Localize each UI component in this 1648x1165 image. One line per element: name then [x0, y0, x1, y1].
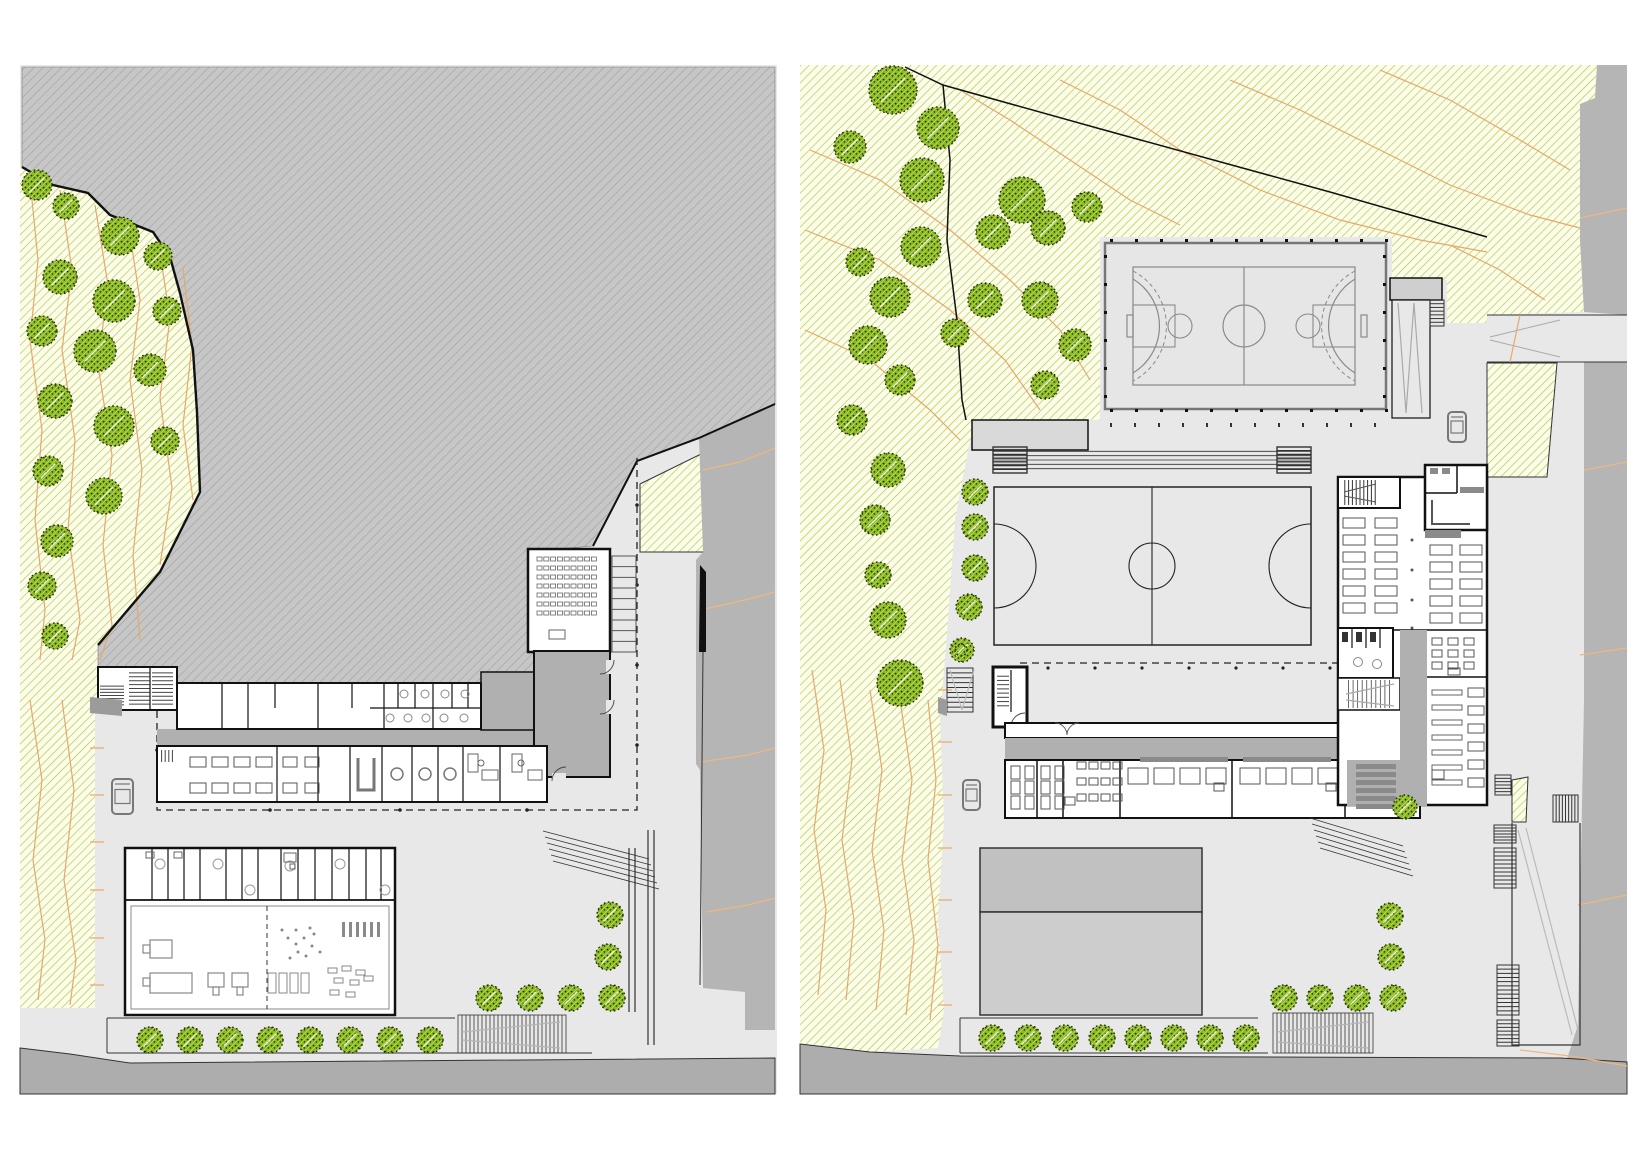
- fence-posts-right-cell: [1383, 339, 1386, 342]
- tree: [1031, 371, 1059, 399]
- floor-scatter-dot: [297, 951, 300, 954]
- tree: [901, 227, 941, 267]
- gym-roof-lower: [980, 912, 1202, 1015]
- tree: [1125, 1025, 1151, 1051]
- hall-bars-cell: [342, 922, 345, 937]
- tree: [94, 406, 134, 446]
- tree: [1015, 1025, 1041, 1051]
- corridor: [157, 729, 547, 746]
- tree: [217, 1027, 243, 1053]
- tree: [871, 453, 905, 487]
- tree: [837, 405, 867, 435]
- tree: [38, 384, 72, 418]
- fence-posts-left-cell: [1104, 283, 1107, 286]
- fence-posts-right-cell: [1383, 311, 1386, 314]
- property-markers-dot: [1281, 666, 1284, 669]
- tree: [1072, 192, 1102, 222]
- corridor-benches-cell: [1356, 772, 1396, 777]
- kitchen: [1425, 465, 1487, 530]
- fence-posts-top-cell: [1310, 239, 1313, 242]
- property-markers-dot: [635, 663, 639, 667]
- corridor-benches-cell: [1356, 788, 1396, 793]
- tree: [1089, 1025, 1115, 1051]
- tree: [595, 944, 621, 970]
- locker-strips-item: [1140, 757, 1228, 762]
- ramp-wedge: [938, 697, 947, 716]
- tree: [979, 1025, 1005, 1051]
- floor-scatter-dot: [305, 955, 308, 958]
- tree: [597, 902, 623, 928]
- fence-posts-top-cell: [1210, 239, 1213, 242]
- south-building: [125, 848, 395, 1015]
- site-plan-canvas: [0, 0, 1648, 1165]
- floor-scatter-dot: [295, 943, 298, 946]
- hall-bars-cell: [349, 922, 352, 937]
- tree: [1344, 985, 1370, 1011]
- corridor-benches-cell: [1356, 804, 1396, 809]
- property-markers-dot: [1046, 666, 1049, 669]
- tree: [33, 456, 63, 486]
- locker-strips-item: [1243, 757, 1331, 762]
- fence-posts-left-cell: [1104, 367, 1107, 370]
- tree: [1393, 795, 1417, 819]
- fence-posts-top-cell: [1260, 239, 1263, 242]
- fence-posts-top-cell: [1285, 239, 1288, 242]
- tree: [74, 330, 116, 372]
- property-markers-dot: [1328, 666, 1331, 669]
- tree: [86, 478, 122, 514]
- kitchen-fixtures-item: [1442, 468, 1450, 474]
- tree: [517, 985, 543, 1011]
- fence-posts-bottom-cell: [1385, 409, 1388, 412]
- fence-posts-row2-cell: [1350, 423, 1352, 427]
- tree: [962, 555, 988, 581]
- fence-posts-row2-cell: [1374, 423, 1376, 427]
- tree: [1059, 329, 1091, 361]
- property-markers-dot: [1234, 666, 1237, 669]
- walkway-stair: [1494, 825, 1516, 843]
- fence-posts-top-cell: [1135, 239, 1138, 242]
- floor-scatter-dot: [287, 937, 290, 940]
- green-triangle: [1512, 777, 1528, 822]
- fence-posts-row2-cell: [1206, 423, 1208, 427]
- tree: [1380, 985, 1406, 1011]
- fence-posts-row2-cell: [1110, 423, 1112, 427]
- fence-posts-top-cell: [1160, 239, 1163, 242]
- fence-posts-bottom-cell: [1160, 409, 1163, 412]
- tree: [134, 354, 166, 386]
- column-dots-dot: [1411, 539, 1414, 542]
- tree: [962, 514, 988, 540]
- floor-scatter-dot: [313, 933, 316, 936]
- property-markers-dot: [635, 503, 639, 507]
- tree: [153, 297, 181, 325]
- tree: [297, 1027, 323, 1053]
- gym-roof-upper: [980, 848, 1202, 912]
- tree: [900, 158, 944, 202]
- tree: [956, 594, 982, 620]
- floor-scatter-dot: [289, 957, 292, 960]
- fence-posts-row2-cell: [1230, 423, 1232, 427]
- wc-stalls-item: [1342, 632, 1348, 642]
- tree: [1197, 1025, 1223, 1051]
- floor-scatter-dot: [303, 937, 306, 940]
- right-site-plan: [800, 65, 1627, 1094]
- tree: [337, 1027, 363, 1053]
- tree: [962, 479, 988, 505]
- tree: [1271, 985, 1297, 1011]
- property-markers-dot: [398, 808, 402, 812]
- fence-posts-bottom-cell: [1285, 409, 1288, 412]
- fence-posts-right-cell: [1383, 255, 1386, 258]
- property-markers-dot: [268, 808, 272, 812]
- fence-posts-row2-cell: [1326, 423, 1328, 427]
- tree: [27, 316, 57, 346]
- tree: [151, 427, 179, 455]
- tree: [1022, 282, 1058, 318]
- tree: [976, 215, 1010, 249]
- auditorium: [528, 549, 610, 652]
- road-upper-east: [1580, 65, 1627, 315]
- fence-posts-left-cell: [1104, 395, 1107, 398]
- fence-posts-top-cell: [1185, 239, 1188, 242]
- north-rooms: [177, 683, 481, 729]
- sports-court-surface: [1105, 243, 1386, 409]
- fence-posts-top-cell: [1235, 239, 1238, 242]
- property-markers-dot: [1140, 666, 1143, 669]
- south-classrooms: [157, 746, 547, 802]
- ramp-wedge: [90, 697, 122, 716]
- tree: [917, 107, 959, 149]
- wc-stalls-item: [1356, 632, 1362, 642]
- wc-stalls-item: [1370, 632, 1376, 642]
- fence-posts-row2-cell: [1302, 423, 1304, 427]
- fence-posts-bottom-cell: [1210, 409, 1213, 412]
- walkway-stair: [1495, 775, 1511, 795]
- tree: [870, 277, 910, 317]
- tree: [43, 260, 77, 294]
- hall-bars-cell: [377, 922, 380, 937]
- floor-scatter-dot: [319, 951, 322, 954]
- floor-scatter-dot: [295, 929, 298, 932]
- left-site-plan: [20, 65, 777, 1094]
- hall-bars-cell: [356, 922, 359, 937]
- fence-posts-right-cell: [1383, 367, 1386, 370]
- property-markers-dot: [1187, 666, 1190, 669]
- tree: [101, 217, 139, 255]
- tree: [558, 985, 584, 1011]
- fence-posts-right-cell: [1383, 395, 1386, 398]
- fence-posts-row2-cell: [1254, 423, 1256, 427]
- tree: [257, 1027, 283, 1053]
- tree: [1031, 211, 1065, 245]
- column-dots-dot: [1411, 627, 1414, 630]
- tree: [599, 985, 625, 1011]
- corridor-benches-cell: [1356, 796, 1396, 801]
- tree: [41, 525, 73, 557]
- tree: [885, 365, 915, 395]
- tree: [1161, 1025, 1187, 1051]
- tree: [1052, 1025, 1078, 1051]
- fence-posts-bottom-cell: [1260, 409, 1263, 412]
- fence-posts-left-cell: [1104, 339, 1107, 342]
- floor-scatter-dot: [309, 927, 312, 930]
- column-dots-dot: [1411, 569, 1414, 572]
- tree: [1377, 903, 1403, 929]
- tree: [860, 505, 890, 535]
- tree: [53, 193, 79, 219]
- corridor-benches-cell: [1356, 764, 1396, 769]
- retaining-wall: [972, 420, 1088, 450]
- tree: [1307, 985, 1333, 1011]
- serving-band: [1425, 530, 1461, 538]
- tree: [865, 562, 891, 588]
- wc-stalls: [1342, 632, 1376, 642]
- fence-posts-bottom-cell: [1110, 409, 1113, 412]
- tree: [28, 572, 56, 600]
- fence-posts-right-cell: [1383, 283, 1386, 286]
- tree: [870, 602, 906, 638]
- fence-posts-left-cell: [1104, 255, 1107, 258]
- tree: [22, 170, 52, 200]
- tree: [941, 319, 969, 347]
- ramp-landing: [1390, 278, 1442, 300]
- tree: [1233, 1025, 1259, 1051]
- property-markers-dot: [525, 808, 529, 812]
- site-plan-sheet: [0, 0, 1648, 1165]
- tree: [834, 131, 866, 163]
- tree: [846, 248, 874, 276]
- tree: [968, 283, 1002, 317]
- tree: [849, 326, 887, 364]
- tree: [137, 1027, 163, 1053]
- hall-bars-cell: [363, 922, 366, 937]
- road-east: [696, 404, 775, 1030]
- hall-bars-cell: [370, 922, 373, 937]
- fence-posts-bottom-cell: [1235, 409, 1238, 412]
- floor-scatter-dot: [281, 929, 284, 932]
- fence-posts-top-cell: [1110, 239, 1113, 242]
- west-hall-room: [481, 672, 534, 730]
- tree: [42, 623, 68, 649]
- fence-posts-bottom-cell: [1135, 409, 1138, 412]
- stair-block-top: [1338, 477, 1400, 508]
- tree: [476, 985, 502, 1011]
- floor-scatter-dot: [311, 945, 314, 948]
- fence-posts-row2-cell: [1134, 423, 1136, 427]
- property-markers-dot: [1093, 666, 1096, 669]
- fence-posts-bottom-cell: [1310, 409, 1313, 412]
- kitchen-fixtures-item: [1460, 487, 1484, 493]
- fence-posts-left-cell: [1104, 311, 1107, 314]
- green-wedge-east: [1487, 363, 1557, 477]
- fence-posts-top-cell: [1360, 239, 1363, 242]
- tree: [955, 644, 967, 656]
- column-dots-dot: [1411, 599, 1414, 602]
- corridor-benches-cell: [1356, 780, 1396, 785]
- tree: [144, 242, 172, 270]
- tree: [417, 1027, 443, 1053]
- fence-posts-bottom-cell: [1185, 409, 1188, 412]
- fence-posts-row2-cell: [1278, 423, 1280, 427]
- tree: [869, 66, 917, 114]
- kitchen-fixtures-item: [1430, 468, 1438, 474]
- tree: [177, 1027, 203, 1053]
- fence-posts-top-cell: [1335, 239, 1338, 242]
- property-markers-dot: [635, 743, 639, 747]
- retaining-wedge: [699, 565, 706, 652]
- tree: [377, 1027, 403, 1053]
- fence-posts-row2-cell: [1158, 423, 1160, 427]
- switchback-ramp: [1392, 300, 1430, 418]
- tree: [1378, 944, 1404, 970]
- fence-posts-bottom-cell: [1360, 409, 1363, 412]
- fence-posts-bottom-cell: [1335, 409, 1338, 412]
- fence-posts-top-cell: [1385, 239, 1388, 242]
- tree: [93, 280, 135, 322]
- tree: [877, 660, 923, 706]
- fence-posts-row2-cell: [1182, 423, 1184, 427]
